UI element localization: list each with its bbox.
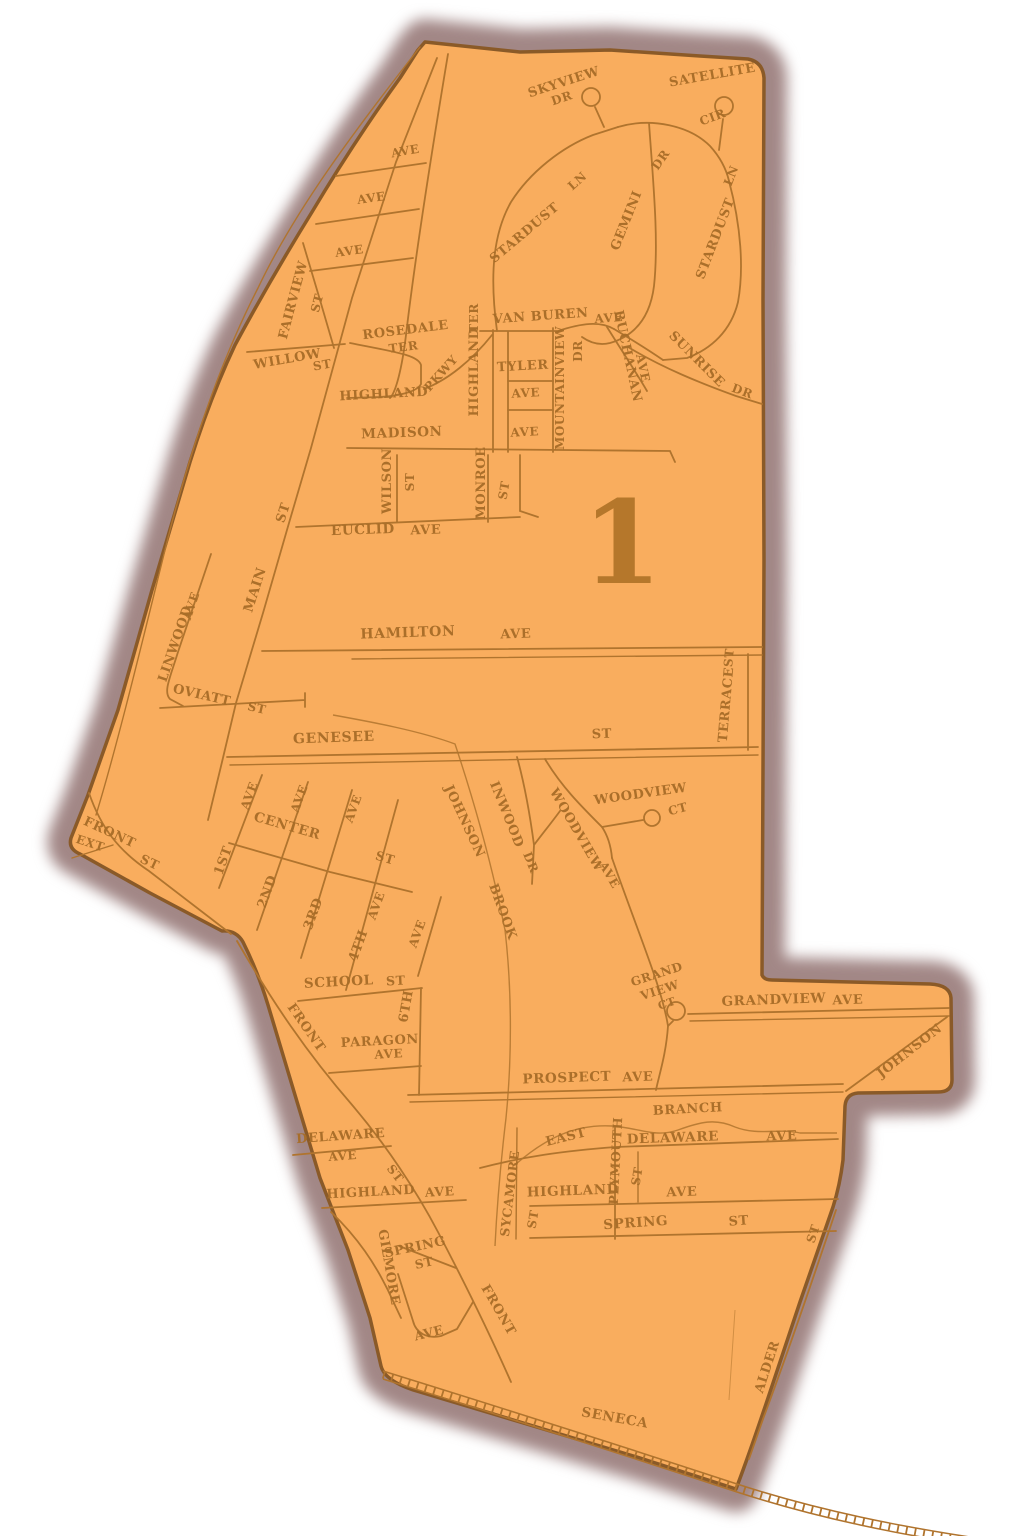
district-map-page: SKYVIEWDRSATELLITECIRSTARDUSTLNGEMINIDRS… [0,0,1012,1536]
street-label: MADISON [361,424,443,443]
street-label: HIGHLAND [467,328,482,417]
street-label: AVE [327,1148,358,1164]
ward-map: SKYVIEWDRSATELLITECIRSTARDUSTLNGEMINIDRS… [0,0,1012,1536]
street-label: AVE [499,626,531,642]
street-label: ST [591,727,612,743]
street-label: ST [386,973,406,989]
street-label: HIGHLAND [527,1181,620,1200]
street-label: ST [728,1213,749,1229]
street-label: AVE [509,424,539,440]
street-label: TER [467,303,481,333]
street-label: AVE [621,1069,653,1085]
street-label: AVE [665,1184,697,1200]
street-label: ST [721,648,737,668]
street-label: DELAWARE [626,1128,719,1147]
district-number: 1 [582,476,662,611]
street-label: HAMILTON [360,623,456,642]
street-label: AVE [409,522,441,538]
street-label: AVE [510,385,540,401]
street-label: MOUNTAINVIEW [553,326,567,450]
street-label: WILSON [380,448,395,515]
street-label: TYLER [497,358,550,376]
street-label: GENESEE [293,729,375,748]
street-label: AVE [765,1128,797,1144]
street-label: PROSPECT [522,1068,611,1087]
street-label: DR [571,340,585,362]
street-label: AVE [373,1046,403,1062]
street-label: EUCLID [331,521,395,539]
street-label: ST [403,473,417,492]
street-label: AVE [423,1183,455,1200]
street-label: MONROE [474,446,489,519]
street-label: AVE [831,992,863,1008]
